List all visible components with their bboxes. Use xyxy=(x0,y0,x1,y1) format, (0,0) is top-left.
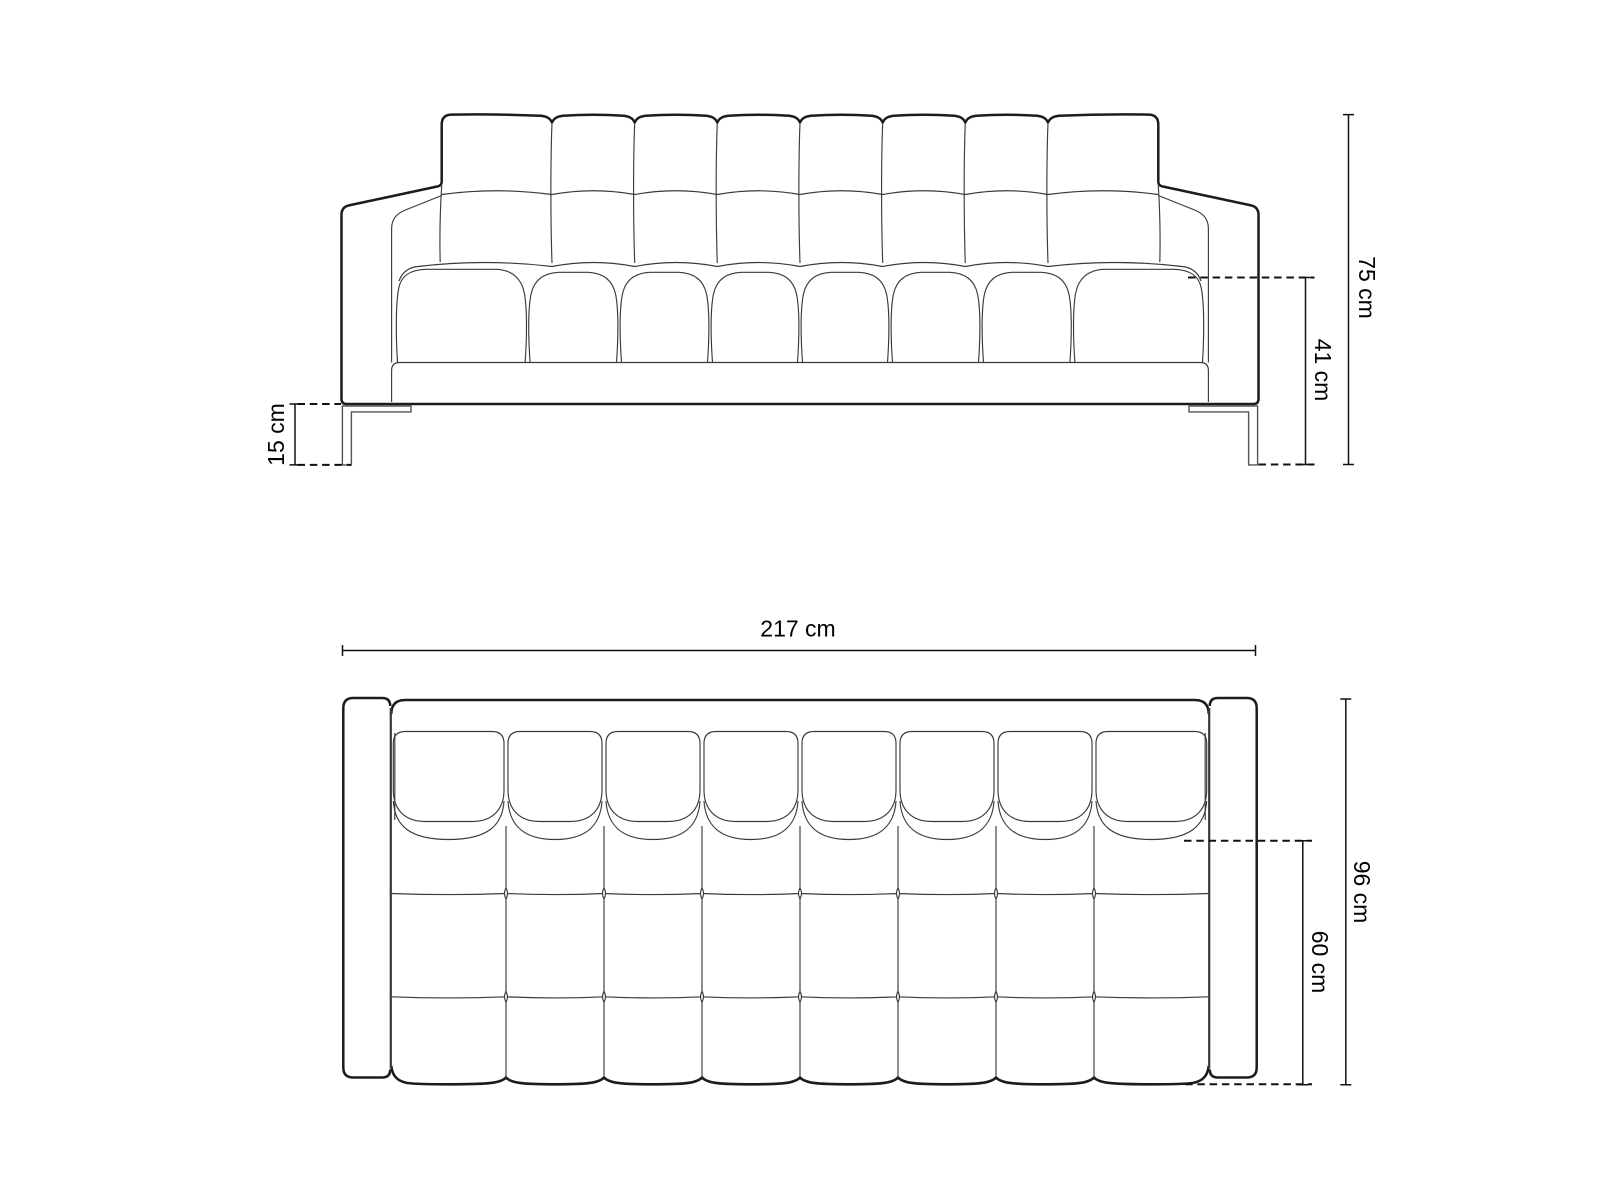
svg-text:217 cm: 217 cm xyxy=(760,616,835,642)
svg-text:75 cm: 75 cm xyxy=(1354,256,1380,319)
svg-text:15 cm: 15 cm xyxy=(263,403,289,466)
svg-text:96 cm: 96 cm xyxy=(1349,861,1375,924)
svg-text:60 cm: 60 cm xyxy=(1307,931,1333,994)
svg-text:41 cm: 41 cm xyxy=(1310,339,1336,402)
